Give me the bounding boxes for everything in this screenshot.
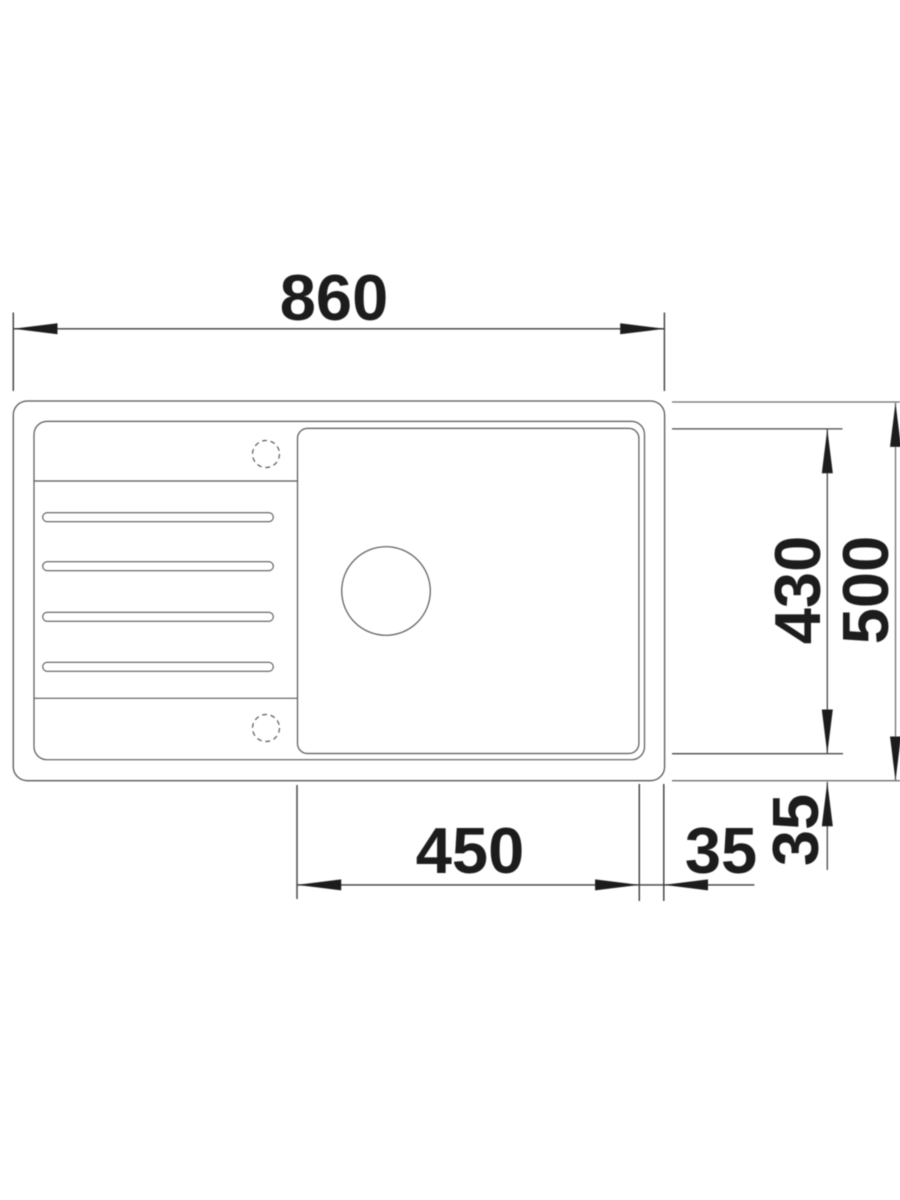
- svg-text:450: 450: [416, 814, 524, 887]
- svg-text:35: 35: [759, 794, 832, 866]
- svg-text:860: 860: [280, 261, 388, 334]
- svg-text:430: 430: [761, 536, 834, 644]
- svg-text:35: 35: [685, 814, 757, 887]
- svg-text:500: 500: [829, 536, 900, 644]
